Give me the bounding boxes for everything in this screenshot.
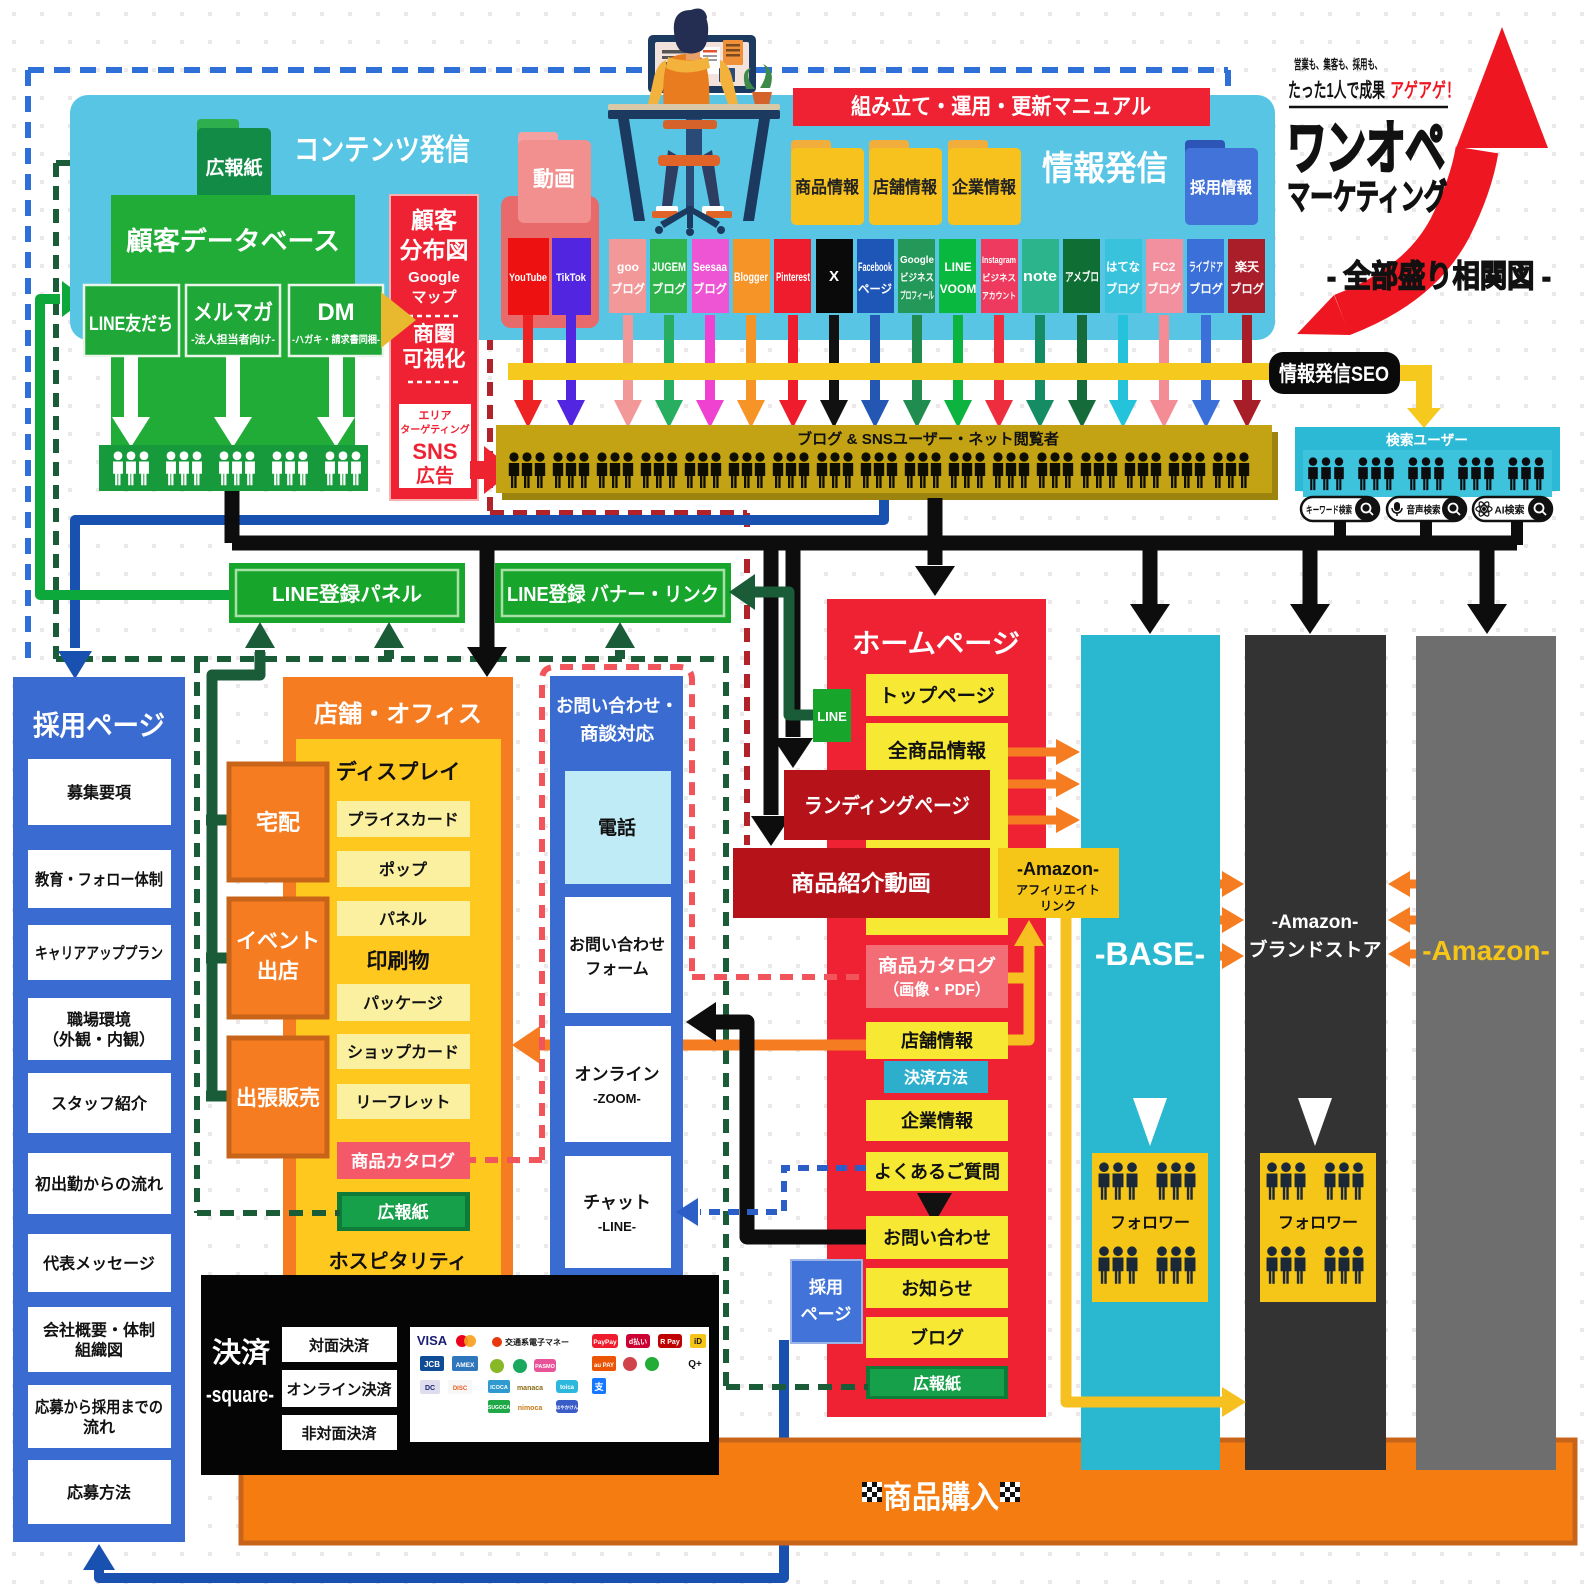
svg-text:ブログ: ブログ [611, 281, 645, 296]
svg-text:応募から採用までの: 応募から採用までの [35, 1398, 163, 1417]
svg-text:トップページ: トップページ [879, 684, 995, 707]
svg-text:広報紙: 広報紙 [378, 1202, 429, 1222]
svg-text:フォロワー: フォロワー [1278, 1215, 1358, 1232]
svg-text:ブログ: ブログ [1230, 281, 1264, 296]
svg-text:VOOM: VOOM [940, 282, 977, 296]
svg-text:オンライン: オンライン [575, 1065, 660, 1084]
svg-text:アゲアゲ！: アゲアゲ！ [1390, 79, 1460, 102]
svg-text:ビジネス: ビジネス [982, 272, 1016, 283]
svg-text:ランディングページ: ランディングページ [804, 794, 970, 818]
svg-text:-Amazon-: -Amazon- [1272, 912, 1359, 933]
svg-text:メルマガ: メルマガ [193, 300, 273, 325]
svg-text:TikTok: TikTok [556, 272, 587, 284]
svg-text:広報紙: 広報紙 [913, 1374, 961, 1393]
svg-text:お知らせ: お知らせ [901, 1278, 973, 1299]
svg-text:商談対応: 商談対応 [580, 723, 654, 744]
svg-text:manaca: manaca [517, 1385, 543, 1392]
svg-text:出店: 出店 [257, 959, 299, 983]
svg-text:-法人担当者向け-: -法人担当者向け- [191, 332, 275, 346]
svg-text:アカウント: アカウント [982, 291, 1016, 301]
svg-text:お問い合わせ: お問い合わせ [883, 1227, 991, 1248]
svg-text:LINE: LINE [817, 709, 847, 724]
svg-text:- 全部盛り相関図 -: - 全部盛り相関図 - [1327, 259, 1551, 294]
svg-text:広告: 広告 [416, 464, 454, 487]
svg-text:職場環境: 職場環境 [67, 1010, 131, 1029]
svg-text:SUGOCA: SUGOCA [488, 1405, 510, 1411]
svg-text:Google: Google [408, 269, 460, 286]
svg-text:採用情報: 採用情報 [1190, 178, 1253, 197]
svg-text:キャリアアッププラン: キャリアアッププラン [35, 944, 163, 963]
svg-text:よくあるご質問: よくあるご質問 [874, 1161, 1000, 1182]
svg-text:教育・フォロー体制: 教育・フォロー体制 [35, 870, 163, 889]
svg-text:LINE友だち: LINE友だち [89, 312, 173, 335]
svg-text:ICOCA: ICOCA [490, 1385, 508, 1391]
svg-text:SNS: SNS [412, 439, 457, 464]
svg-text:ビジネス: ビジネス [900, 271, 934, 284]
svg-text:コンテンツ発信: コンテンツ発信 [294, 134, 470, 167]
svg-text:ブログ: ブログ [1106, 281, 1140, 296]
svg-text:-ZOOM-: -ZOOM- [593, 1091, 641, 1106]
svg-text:商品情報: 商品情報 [795, 177, 860, 197]
svg-text:企業情報: 企業情報 [951, 177, 1017, 197]
svg-text:ターゲティング: ターゲティング [400, 423, 469, 436]
svg-text:店舗情報: 店舗情報 [901, 1030, 974, 1051]
svg-text:（外観・内観）: （外観・内観） [43, 1030, 155, 1049]
svg-text:アメブロ: アメブロ [1065, 269, 1099, 284]
svg-text:ブログ: ブログ [1147, 281, 1181, 296]
svg-text:ショップカード: ショップカード [347, 1043, 459, 1062]
svg-text:可視化: 可視化 [403, 347, 466, 371]
svg-text:はやかけん: はやかけん [556, 1404, 579, 1411]
svg-text:Pinterest: Pinterest [776, 270, 810, 284]
svg-text:プライスカード: プライスカード [347, 810, 459, 829]
svg-text:（画像・PDF）: （画像・PDF） [884, 980, 990, 999]
svg-text:オンライン決済: オンライン決済 [286, 1381, 392, 1399]
svg-text:ホームページ: ホームページ [852, 629, 1020, 659]
svg-text:音声検索: 音声検索 [1407, 504, 1441, 517]
svg-text:DM: DM [317, 299, 354, 326]
svg-text:DC: DC [425, 1385, 435, 1392]
svg-text:宅配: 宅配 [256, 810, 300, 835]
svg-text:流れ: 流れ [83, 1418, 115, 1437]
svg-text:チャット: チャット [583, 1193, 651, 1212]
svg-text:ページ: ページ [801, 1305, 852, 1324]
svg-text:非対面決済: 非対面決済 [301, 1425, 377, 1443]
svg-text:-square-: -square- [206, 1382, 274, 1407]
svg-text:JCB: JCB [424, 1360, 440, 1369]
svg-text:PASMO: PASMO [535, 1364, 555, 1370]
svg-text:採用: 採用 [809, 1277, 843, 1297]
svg-text:企業情報: 企業情報 [900, 1110, 974, 1131]
svg-text:募集要項: 募集要項 [66, 783, 132, 802]
svg-text:商品購入: 商品購入 [883, 1480, 999, 1515]
svg-text:VISA: VISA [417, 1333, 448, 1348]
svg-text:AMEX: AMEX [456, 1362, 475, 1369]
svg-text:au PAY: au PAY [594, 1363, 614, 1369]
svg-text:FC2: FC2 [1153, 260, 1176, 274]
svg-text:お問い合わせ: お問い合わせ [569, 935, 665, 954]
svg-text:顧客: 顧客 [411, 207, 458, 233]
svg-text:-BASE-: -BASE- [1095, 936, 1205, 972]
svg-text:R Pay: R Pay [660, 1339, 680, 1346]
svg-text:-Amazon-: -Amazon- [1422, 935, 1550, 966]
svg-text:LINE: LINE [944, 260, 971, 274]
svg-text:たった1人で成果: たった1人で成果 [1288, 78, 1385, 102]
svg-text:代表メッセージ: 代表メッセージ [42, 1254, 155, 1273]
svg-text:スタッフ紹介: スタッフ紹介 [51, 1094, 148, 1113]
svg-text:ブログ & SNSユーザー・ネット閲覧者: ブログ & SNSユーザー・ネット閲覧者 [797, 430, 1059, 448]
svg-text:情報発信: 情報発信 [1042, 150, 1168, 188]
svg-text:プロフィール: プロフィール [900, 289, 934, 302]
svg-text:ポップ: ポップ [379, 860, 428, 879]
svg-text:note: note [1023, 268, 1057, 285]
svg-text:電話: 電話 [598, 816, 636, 839]
svg-text:リンク: リンク [1040, 899, 1076, 913]
svg-text:goo: goo [617, 260, 639, 274]
svg-text:d払い: d払い [629, 1337, 647, 1346]
svg-text:フォーム: フォーム [585, 961, 649, 978]
svg-text:YouTube: YouTube [509, 272, 547, 284]
svg-text:-ハガキ・請求書同梱-: -ハガキ・請求書同梱- [292, 333, 380, 346]
svg-text:AI検索: AI検索 [1495, 504, 1525, 517]
svg-text:採用ページ: 採用ページ [33, 710, 165, 741]
svg-text:広報紙: 広報紙 [205, 156, 262, 179]
svg-text:楽天: 楽天 [1235, 259, 1260, 274]
svg-text:営業も、集客も、採用も、: 営業も、集客も、採用も、 [1294, 57, 1382, 72]
svg-text:Google: Google [900, 255, 934, 266]
svg-text:JUGEM: JUGEM [652, 260, 686, 274]
svg-text:決済方法: 決済方法 [904, 1068, 968, 1087]
svg-text:情報発信SEO: 情報発信SEO [1279, 362, 1389, 386]
svg-text:イベント: イベント [236, 930, 320, 953]
svg-text:LINE登録 バナー・リンク: LINE登録 バナー・リンク [507, 582, 719, 606]
svg-text:対面決済: 対面決済 [308, 1337, 370, 1355]
svg-text:ブログ: ブログ [910, 1327, 964, 1348]
svg-text:商品カタログ: 商品カタログ [878, 955, 996, 976]
svg-text:商品カタログ: 商品カタログ [351, 1151, 455, 1171]
svg-text:はてな: はてな [1106, 260, 1140, 274]
svg-text:組織図: 組織図 [75, 1341, 123, 1360]
svg-text:nimoca: nimoca [518, 1405, 543, 1412]
svg-text:-LINE-: -LINE- [598, 1219, 636, 1234]
svg-text:Seesaa: Seesaa [693, 260, 727, 274]
svg-text:アフィリエイト: アフィリエイト [1016, 883, 1100, 897]
svg-text:出張販売: 出張販売 [236, 1087, 320, 1110]
svg-text:組み立て・運用・更新マニュアル: 組み立て・運用・更新マニュアル [851, 94, 1151, 119]
svg-text:Facebook: Facebook [858, 260, 892, 274]
svg-text:マーケティング: マーケティング [1287, 178, 1447, 217]
svg-text:動画: 動画 [533, 168, 575, 191]
svg-text:ワンオペ: ワンオペ [1287, 116, 1445, 181]
svg-text:印刷物: 印刷物 [367, 949, 430, 973]
svg-text:Q+: Q+ [688, 1359, 702, 1370]
svg-text:パッケージ: パッケージ [363, 995, 443, 1013]
svg-text:店舗・オフィス: 店舗・オフィス [314, 701, 482, 728]
svg-text:分布図: 分布図 [400, 237, 469, 263]
svg-text:会社概要・体制: 会社概要・体制 [43, 1321, 155, 1340]
svg-text:Instagram: Instagram [982, 255, 1016, 265]
svg-text:PayPay: PayPay [593, 1339, 617, 1346]
svg-text:リーフレット: リーフレット [355, 1095, 450, 1112]
svg-text:お問い合わせ・: お問い合わせ・ [556, 695, 678, 716]
svg-text:全商品情報: 全商品情報 [887, 739, 987, 762]
svg-text:応募方法: 応募方法 [67, 1483, 131, 1502]
svg-text:エリア: エリア [419, 409, 452, 422]
svg-text:決済: 決済 [212, 1337, 271, 1368]
svg-text:商品紹介動画: 商品紹介動画 [791, 871, 931, 896]
svg-text:-Amazon-: -Amazon- [1017, 859, 1099, 879]
svg-text:支: 支 [593, 1381, 604, 1392]
svg-text:検索ユーザー: 検索ユーザー [1386, 432, 1468, 448]
svg-text:ディスプレイ: ディスプレイ [336, 760, 461, 784]
svg-text:ブログ: ブログ [693, 281, 727, 296]
svg-text:ホスピタリティ: ホスピタリティ [329, 1250, 468, 1273]
svg-text:マップ: マップ [411, 289, 457, 306]
svg-text:交通系電子マネー: 交通系電子マネー [505, 1337, 569, 1347]
svg-text:商圏: 商圏 [413, 322, 455, 346]
svg-text:X: X [829, 268, 839, 285]
svg-text:顧客データベース: 顧客データベース [126, 226, 340, 256]
svg-text:toica: toica [560, 1385, 575, 1391]
svg-text:LINE登録パネル: LINE登録パネル [272, 582, 422, 606]
svg-text:ブログ: ブログ [652, 281, 686, 296]
svg-text:パネル: パネル [379, 911, 427, 929]
svg-text:ブランドストア: ブランドストア [1248, 938, 1381, 961]
svg-text:キーワード検索: キーワード検索 [1306, 504, 1352, 517]
svg-text:ブログ: ブログ [1189, 281, 1223, 296]
svg-text:Blogger: Blogger [734, 270, 768, 284]
svg-text:店舗情報: 店舗情報 [873, 177, 938, 197]
svg-text:ライブドア: ライブドア [1189, 259, 1223, 274]
svg-text:iD: iD [694, 1337, 702, 1346]
svg-text:フォロワー: フォロワー [1110, 1215, 1190, 1232]
svg-text:初出勤からの流れ: 初出勤からの流れ [35, 1175, 163, 1194]
svg-text:ページ: ページ [858, 282, 892, 296]
svg-text:DISC: DISC [453, 1386, 468, 1392]
